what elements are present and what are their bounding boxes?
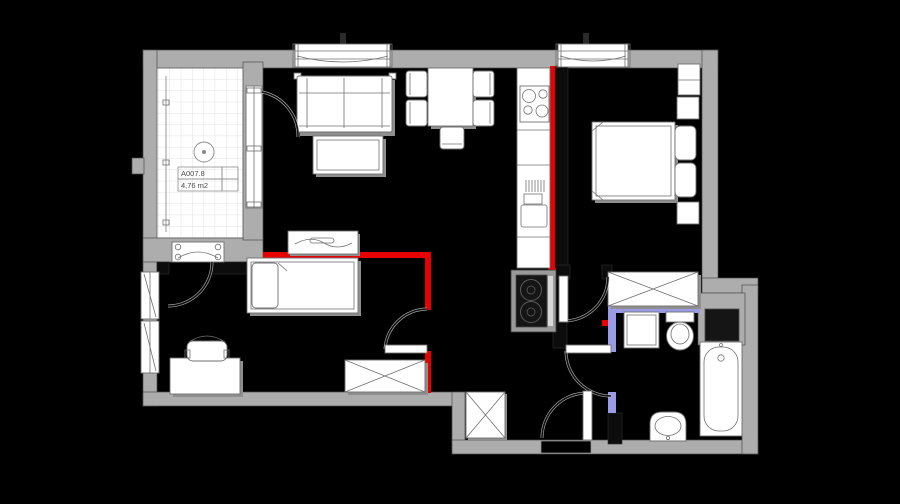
radiator	[172, 242, 224, 262]
floor-plan: A007.8 4,76 m2	[0, 0, 900, 504]
wall-right-upper	[702, 50, 718, 293]
window-kids-room-lower	[141, 321, 159, 373]
wall-top	[143, 50, 718, 68]
washing-machine	[624, 312, 659, 348]
nightstand	[677, 97, 699, 119]
kids-room-furniture	[170, 242, 428, 397]
desk-chair	[185, 336, 229, 361]
dining-chair	[440, 127, 464, 149]
single-bed	[247, 258, 358, 313]
console-shelf	[288, 231, 360, 256]
room-code: A007.8	[181, 169, 205, 178]
toilet	[666, 312, 694, 350]
bathtub	[700, 342, 742, 436]
nightstand	[677, 202, 699, 224]
door-swing-arc	[564, 277, 608, 321]
balcony-door-glazing	[246, 86, 262, 208]
wall-bottom	[452, 440, 758, 454]
entrance-opening	[541, 441, 591, 453]
wall-bedroom-west	[555, 66, 568, 272]
double-bed	[592, 122, 675, 200]
floor-plan-svg: A007.8 4,76 m2	[0, 0, 900, 504]
pillow	[675, 126, 696, 160]
balcony: A007.8 4,76 m2	[153, 68, 243, 238]
wardrobe-bedroom	[608, 272, 701, 309]
dining-chair	[406, 71, 427, 97]
pillow	[675, 163, 696, 197]
window-kids-room-upper	[141, 272, 159, 319]
door-leaf-bedroom	[559, 276, 568, 322]
dining-chair	[473, 71, 494, 97]
floor-drain-center	[202, 150, 206, 154]
wall-vestibule-west	[452, 392, 465, 448]
door-swing-arc	[542, 393, 587, 438]
coffee-table	[313, 136, 383, 174]
duct-shaft	[705, 309, 739, 341]
window-bedroom	[556, 44, 630, 67]
closet-vestibule	[466, 392, 507, 440]
entrance-door-leaf	[583, 391, 592, 440]
wall-shelf	[678, 64, 700, 95]
kitchen	[511, 68, 556, 332]
desk	[170, 358, 240, 394]
dining-chair	[473, 100, 494, 126]
window-swing-arc	[168, 262, 212, 306]
kitchen-red-wall-line	[550, 66, 555, 271]
wash-basin	[650, 412, 686, 441]
sofa	[294, 73, 396, 132]
wall-bath-vestibule	[608, 413, 622, 444]
washer-column	[511, 270, 556, 332]
door-swing-arc	[566, 351, 611, 396]
wardrobe-kids	[345, 360, 428, 395]
window-living-room	[293, 44, 392, 67]
new-wall-red-vertical	[425, 252, 431, 310]
door-swing-arc	[385, 309, 427, 349]
dining-chair	[406, 100, 427, 126]
stove	[520, 86, 549, 122]
dining-table	[428, 68, 473, 126]
bedroom-furniture	[592, 64, 701, 309]
door-leaf-bathroom	[566, 345, 611, 353]
pillow	[252, 263, 278, 308]
living-room-furniture	[288, 68, 494, 256]
red-mark	[602, 320, 608, 326]
room-area: 4,76 m2	[181, 181, 208, 190]
door-leaf-kids-room	[385, 345, 427, 353]
wall-left-tab	[132, 158, 144, 174]
